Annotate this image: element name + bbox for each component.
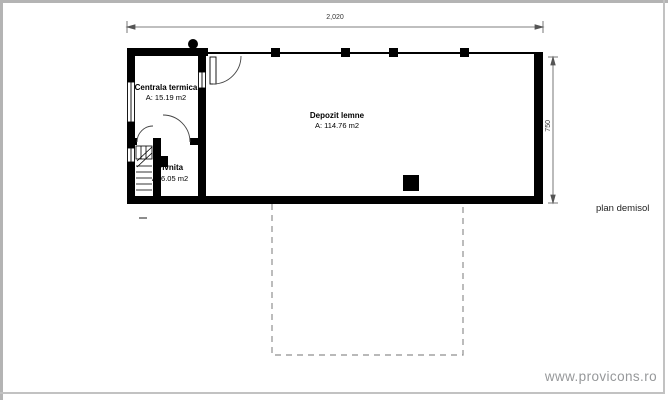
- chimney-icon: [188, 39, 198, 49]
- floorplan-page: 2,020 750 Centrala termica A: 15.19 m2 P…: [0, 0, 668, 400]
- room-area-centrala-termica: A: 15.19 m2: [131, 94, 201, 102]
- room-label-pivnita: Pivnita: [147, 164, 193, 173]
- interior-column-icon: [403, 175, 419, 191]
- wall-interior-seg2: [190, 138, 206, 145]
- room-area-pivnita: A: 6.05 m2: [141, 175, 199, 183]
- dim-arrow-icon: [127, 25, 135, 29]
- wall-top-left-room: [127, 48, 208, 56]
- door-arc: [213, 56, 241, 84]
- column-icon: [271, 48, 280, 57]
- dashed-projection-outline: [272, 204, 463, 355]
- wall-divider-seg1: [198, 48, 206, 72]
- plan-linework: [0, 0, 668, 400]
- watermark-text: www.provicons.ro: [540, 370, 657, 385]
- plan-caption: plan demisol: [596, 204, 649, 214]
- column-icon: [389, 48, 398, 57]
- wall-left-seg1: [127, 48, 135, 82]
- column-icon: [460, 48, 469, 57]
- dimension-height-label: 750: [545, 114, 553, 138]
- wall-interior-seg1: [127, 138, 137, 145]
- room-label-depozit-lemne: Depozit lemne: [292, 112, 382, 121]
- door-arc: [163, 115, 190, 142]
- dim-arrow-icon: [535, 25, 543, 29]
- door-arc: [137, 126, 153, 142]
- dim-arrow-icon: [551, 57, 555, 65]
- wall-divider-seg2: [198, 88, 206, 204]
- dim-arrow-icon: [551, 195, 555, 203]
- column-icon: [341, 48, 350, 57]
- wall-bottom: [127, 196, 543, 204]
- room-area-depozit-lemne: A: 114.76 m2: [292, 122, 382, 130]
- door-leaf: [210, 57, 216, 84]
- dimension-width-label: 2,020: [300, 14, 370, 22]
- wall-top-thin: [206, 52, 543, 54]
- level-marker-dash: [139, 217, 147, 219]
- wall-right: [534, 52, 543, 204]
- room-label-centrala-termica: Centrala termica: [131, 84, 201, 93]
